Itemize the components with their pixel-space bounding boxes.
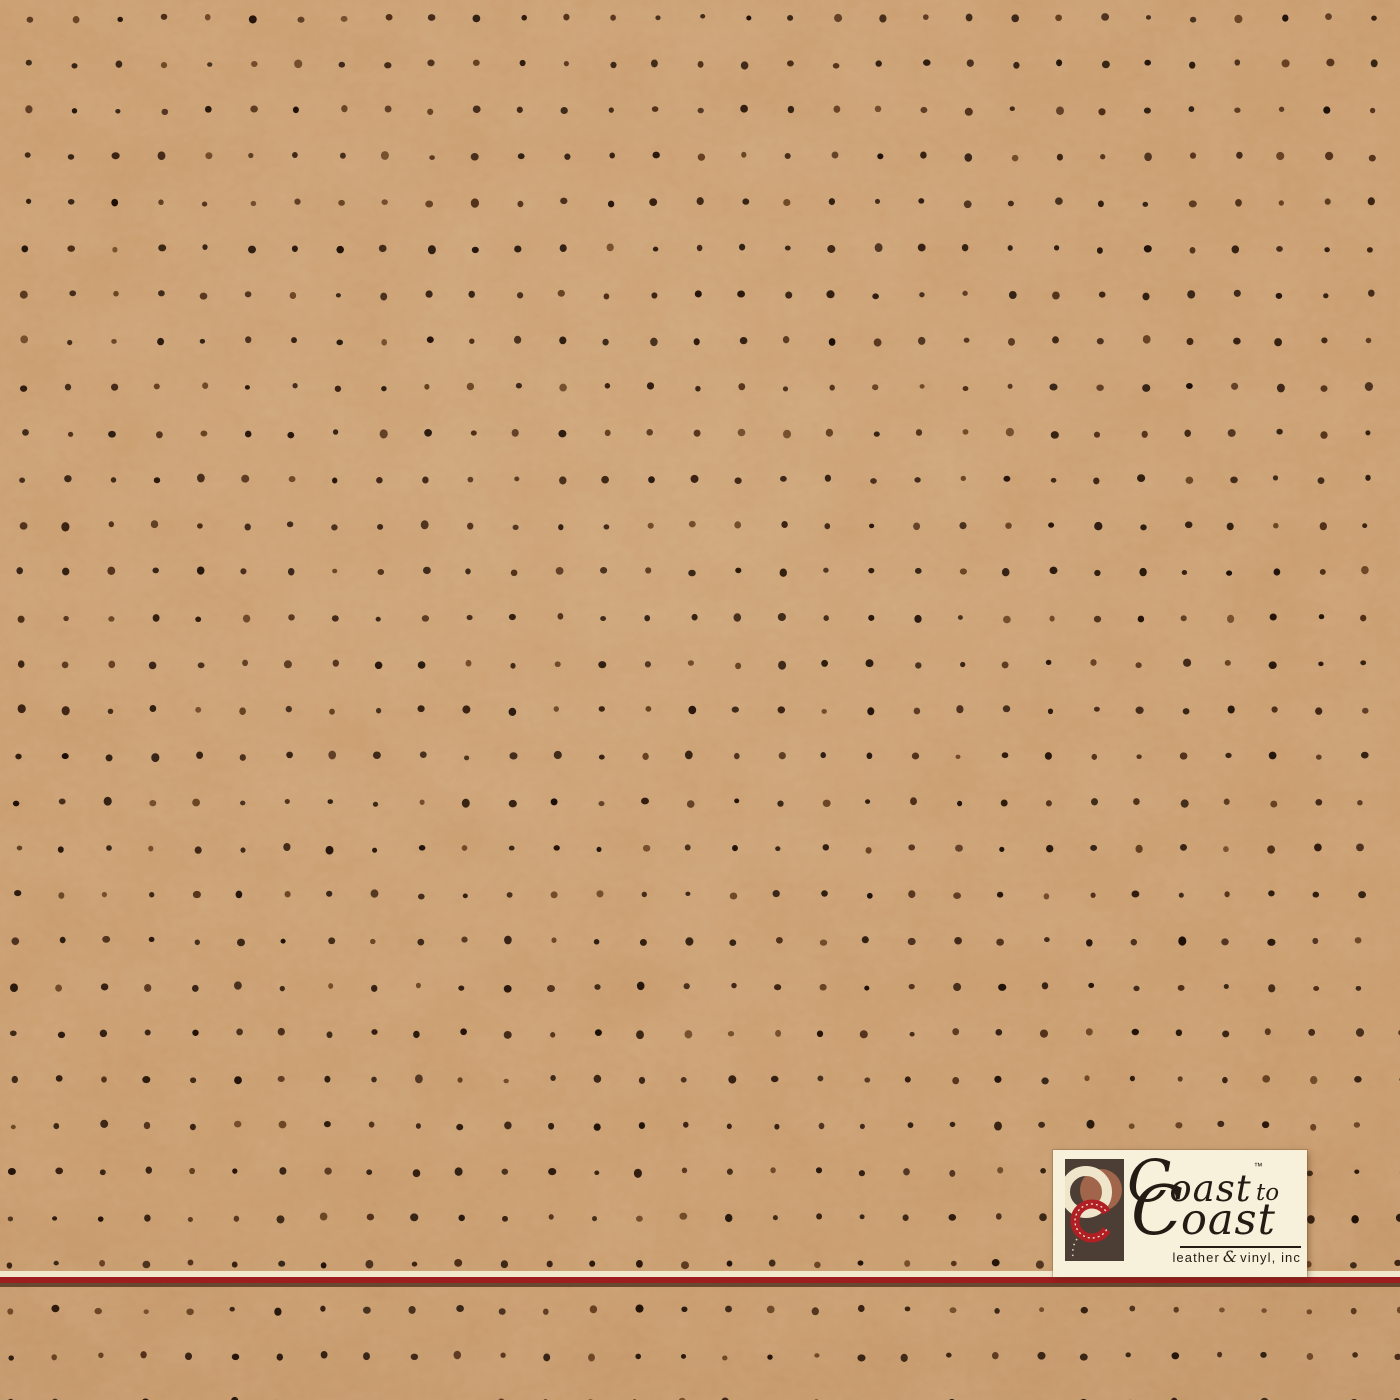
perforation-dot	[735, 477, 742, 484]
perforation-dot	[1126, 1352, 1131, 1357]
perforation-dot	[963, 429, 969, 435]
perforation-dot	[197, 474, 205, 483]
perforation-dot	[1142, 293, 1149, 301]
perforation-dot	[746, 15, 751, 20]
perforation-dot	[192, 799, 200, 807]
perforation-dot	[421, 520, 429, 529]
perforation-dot	[834, 106, 841, 113]
perforation-dot	[1041, 1077, 1048, 1084]
perforation-dot	[289, 476, 296, 482]
perforation-dot	[504, 1121, 511, 1129]
perforation-dot	[997, 892, 1003, 898]
perforation-dot	[698, 154, 705, 161]
perforation-dot	[1088, 983, 1094, 988]
perforation-dot	[602, 339, 608, 346]
perforation-dot	[1261, 1308, 1266, 1313]
perforation-dot	[152, 567, 158, 573]
perforation-dot	[324, 1121, 331, 1127]
perforation-dot	[564, 153, 570, 159]
perforation-dot	[467, 523, 473, 530]
perforation-dot	[689, 521, 696, 528]
perforation-dot	[908, 844, 915, 850]
perforation-dot	[1181, 799, 1189, 807]
perforation-dot	[773, 890, 780, 897]
perforation-dot	[188, 1260, 194, 1266]
perforation-dot	[644, 615, 650, 621]
perforation-dot	[951, 1261, 957, 1266]
perforation-dot	[998, 984, 1006, 991]
perforation-dot	[952, 1028, 959, 1035]
perforation-dot	[908, 938, 916, 945]
perforation-dot	[652, 106, 659, 112]
perforation-dot	[777, 800, 783, 806]
perforation-dot	[694, 430, 701, 437]
perforation-dot	[735, 568, 741, 574]
perforation-dot	[1368, 197, 1375, 205]
perforation-dot	[864, 986, 869, 991]
perforation-dot	[239, 707, 246, 715]
perforation-dot	[1227, 523, 1234, 531]
perforation-dot	[427, 109, 433, 115]
perforation-dot	[381, 199, 387, 205]
perforation-dot	[8, 1216, 13, 1221]
perforation-dot	[144, 1214, 151, 1221]
perforation-dot	[380, 293, 387, 301]
perforation-dot	[1183, 659, 1191, 667]
perforation-dot	[912, 753, 919, 760]
perforation-dot	[1276, 246, 1283, 252]
perforation-dot	[918, 198, 924, 204]
perforation-dot	[467, 383, 474, 390]
perforation-dot	[1319, 614, 1325, 619]
perforation-dot	[994, 1308, 999, 1314]
perforation-dot	[520, 60, 526, 66]
perforation-dot	[466, 660, 472, 667]
perforation-dot	[1310, 1124, 1316, 1131]
perforation-dot	[117, 17, 123, 22]
perforation-dot	[58, 892, 64, 899]
perforation-dot	[458, 1077, 463, 1083]
perforation-dot	[192, 1030, 198, 1036]
perforation-dot	[190, 1124, 196, 1130]
perforation-dot	[514, 336, 521, 344]
perforation-dot	[1268, 984, 1275, 992]
perforation-dot	[232, 1262, 238, 1268]
perforation-dot	[1316, 755, 1322, 760]
perforation-dot	[473, 15, 481, 23]
perforation-dot	[192, 985, 199, 992]
perforation-dot	[16, 567, 23, 574]
perforation-dot	[427, 60, 434, 67]
perforation-dot	[698, 108, 704, 114]
perforation-dot	[1320, 522, 1327, 530]
perforation-dot	[1356, 986, 1362, 991]
perforation-dot	[73, 16, 80, 23]
perforation-dot	[561, 107, 568, 114]
perforation-dot	[1313, 986, 1319, 991]
perforation-dot	[1049, 383, 1057, 390]
perforation-dot	[499, 1308, 506, 1315]
perforation-dot	[1101, 13, 1109, 21]
perforation-dot	[1272, 706, 1278, 712]
perforation-dot	[645, 661, 651, 667]
perforation-dot	[560, 198, 567, 204]
perforation-dot	[460, 1028, 467, 1035]
perforation-dot	[859, 1170, 865, 1176]
perforation-dot	[514, 477, 519, 482]
perforation-dot	[1217, 1352, 1222, 1358]
perforation-dot	[635, 1305, 643, 1313]
perforation-dot	[1226, 570, 1232, 575]
perforation-dot	[725, 1306, 732, 1313]
perforation-dot	[547, 1261, 553, 1268]
perforation-dot	[234, 981, 242, 989]
perforation-dot	[695, 290, 702, 297]
perforation-dot	[294, 198, 300, 204]
perforation-dot	[1282, 14, 1288, 21]
perforation-dot	[1270, 801, 1277, 808]
perforation-dot	[864, 1077, 870, 1082]
perforation-dot	[240, 847, 245, 852]
perforation-dot	[500, 1352, 505, 1357]
perforation-dot	[636, 1260, 643, 1268]
perforation-dot	[281, 939, 286, 944]
perforation-dot	[681, 1261, 689, 1269]
perforation-dot	[279, 1121, 287, 1129]
perforation-dot	[741, 61, 749, 69]
perforation-dot	[108, 431, 116, 438]
perforation-dot	[1086, 1120, 1094, 1129]
perforation-dot	[1325, 198, 1331, 204]
perforation-dot	[425, 200, 433, 207]
perforation-dot	[655, 15, 660, 20]
perforation-dot	[1056, 107, 1064, 116]
perforation-dot	[13, 801, 19, 807]
perforation-dot	[1008, 338, 1015, 346]
perforation-dot	[1184, 430, 1191, 437]
perforation-dot	[872, 384, 878, 390]
perforation-dot	[420, 751, 427, 758]
perforation-dot	[1084, 1075, 1089, 1081]
perforation-dot	[1048, 522, 1054, 527]
perforation-dot	[1352, 1352, 1358, 1358]
perforation-dot	[872, 293, 879, 299]
perforation-dot	[376, 708, 381, 714]
perforation-dot	[207, 62, 212, 67]
perforation-dot	[965, 108, 973, 116]
perforation-dot	[918, 244, 926, 252]
perforation-dot	[1350, 1262, 1357, 1268]
perforation-dot	[1227, 615, 1234, 623]
perforation-dot	[61, 522, 69, 531]
perforation-dot	[1091, 892, 1096, 898]
perforation-dot	[462, 845, 468, 851]
perforation-dot	[284, 660, 292, 668]
perforation-dot	[858, 1260, 864, 1265]
perforation-dot	[412, 1262, 417, 1267]
perforation-dot	[17, 846, 23, 851]
perforation-dot	[509, 752, 517, 759]
perforation-dot	[698, 61, 704, 68]
perforation-dot	[1189, 200, 1197, 207]
perforation-dot	[727, 1261, 733, 1267]
perforation-dot	[376, 617, 381, 622]
perforation-dot	[563, 14, 569, 21]
perforation-dot	[340, 153, 346, 159]
perforation-dot	[607, 243, 614, 251]
perforation-dot	[685, 844, 691, 850]
perforation-dot	[1009, 291, 1017, 299]
perforation-dot	[1171, 1352, 1179, 1359]
perforation-dot	[376, 477, 383, 483]
perforation-dot	[728, 1031, 734, 1036]
perforation-dot	[734, 753, 740, 759]
perforation-dot	[722, 1355, 727, 1360]
perforation-dot	[468, 291, 475, 298]
perforation-dot	[732, 706, 739, 712]
perforation-dot	[100, 1030, 107, 1037]
perforation-dot	[278, 1076, 285, 1082]
logo-tagline-rule	[1180, 1246, 1301, 1248]
perforation-dot	[472, 247, 479, 253]
perforation-dot	[949, 1170, 955, 1177]
perforation-dot	[341, 105, 347, 112]
perforation-dot	[371, 1077, 377, 1083]
perforation-dot	[642, 753, 648, 760]
tagline-word-leather: leather	[1172, 1250, 1219, 1265]
perforation-dot	[1146, 15, 1151, 20]
perforation-dot	[1052, 336, 1059, 343]
perforation-dot	[1142, 431, 1148, 438]
perforation-dot	[62, 706, 70, 715]
perforation-dot	[1394, 1354, 1400, 1360]
perforation-dot	[1318, 662, 1323, 667]
perforation-dot	[1189, 106, 1195, 112]
perforation-dot	[605, 383, 610, 389]
perforation-dot	[1046, 800, 1052, 806]
perforation-dot	[287, 432, 294, 438]
perforation-dot	[725, 1214, 732, 1222]
perforation-dot	[333, 660, 339, 667]
perforation-dot	[338, 200, 345, 206]
perforation-dot	[821, 660, 828, 667]
perforation-dot	[111, 199, 118, 207]
perforation-dot	[53, 1123, 59, 1129]
perforation-dot	[953, 983, 961, 991]
perforation-dot	[326, 891, 332, 897]
perforation-dot	[787, 15, 793, 21]
perforation-dot	[339, 62, 345, 68]
perforation-dot	[1008, 201, 1014, 207]
perforation-dot	[236, 1028, 243, 1035]
perforation-dot	[18, 660, 25, 668]
perforation-dot	[609, 153, 615, 159]
perforation-dot	[413, 1031, 420, 1038]
perforation-dot	[770, 1167, 775, 1173]
perforation-dot	[729, 939, 736, 946]
perforation-dot	[1351, 1308, 1357, 1315]
perforation-dot	[867, 707, 874, 715]
perforation-dot	[639, 1077, 645, 1084]
perforation-dot	[727, 1169, 733, 1175]
perforation-dot	[11, 1125, 16, 1129]
perforation-dot	[957, 801, 962, 807]
perforation-dot	[697, 197, 704, 205]
perforation-dot	[823, 615, 828, 621]
perforation-dot	[558, 290, 565, 297]
perforation-dot	[547, 985, 555, 992]
perforation-dot	[1274, 338, 1282, 346]
perforation-dot	[995, 1029, 1002, 1036]
perforation-dot	[471, 430, 477, 435]
perforation-dot	[734, 799, 739, 804]
perforation-dot	[598, 661, 606, 668]
perforation-dot	[509, 800, 517, 807]
perforation-dot	[112, 247, 117, 253]
perforation-dot	[237, 939, 245, 947]
perforation-dot	[558, 430, 566, 437]
perforation-dot	[651, 292, 657, 298]
perforation-dot	[1144, 152, 1152, 161]
perforation-dot	[158, 151, 166, 160]
perforation-dot	[560, 244, 567, 252]
perforation-dot	[1354, 1122, 1360, 1128]
perforation-dot	[1098, 108, 1105, 115]
perforation-dot	[20, 335, 28, 343]
perforation-dot	[827, 245, 835, 253]
perforation-dot	[186, 1308, 193, 1315]
perforation-dot	[635, 1354, 641, 1360]
perforation-dot	[642, 892, 647, 897]
perforation-dot	[727, 1124, 732, 1130]
perforation-dot	[646, 429, 653, 435]
perforation-dot	[373, 751, 381, 759]
perforation-dot	[232, 1168, 237, 1174]
perforation-dot	[1003, 705, 1010, 712]
perforation-dot	[605, 430, 611, 436]
perforation-dot	[58, 846, 64, 852]
perforation-dot	[1371, 15, 1377, 20]
perforation-dot	[685, 751, 693, 760]
perforation-dot	[426, 290, 433, 297]
perforation-dot	[200, 339, 205, 344]
perforation-dot	[1011, 14, 1019, 22]
perforation-dot	[1142, 202, 1148, 207]
leather-swatch: Coast™ to Coast leather & vinyl, inc	[0, 0, 1400, 1400]
perforation-dot	[737, 290, 745, 297]
perforation-dot	[1315, 799, 1322, 805]
perforation-dot	[234, 1216, 240, 1222]
perforation-dot	[280, 986, 285, 991]
perforation-dot	[820, 752, 826, 758]
perforation-dot	[328, 751, 336, 760]
perforation-dot	[1396, 1214, 1400, 1222]
perforation-dot	[467, 615, 473, 620]
perforation-dot	[636, 1216, 643, 1222]
perforation-dot	[251, 61, 258, 67]
perforation-dot	[422, 477, 428, 484]
perforation-dot	[604, 293, 610, 299]
perforation-dot	[1369, 155, 1376, 162]
perforation-dot	[559, 476, 566, 484]
perforation-dot	[408, 1306, 415, 1314]
perforation-dot	[1186, 477, 1194, 484]
perforation-dot	[1362, 708, 1369, 714]
perforation-dot	[1036, 1260, 1044, 1268]
perforation-dot	[634, 1169, 642, 1178]
perforation-dot	[516, 383, 522, 389]
perforation-dot	[834, 14, 842, 22]
perforation-dot	[915, 568, 922, 574]
perforation-dot	[200, 431, 207, 437]
perforation-dot	[785, 153, 791, 159]
perforation-dot	[1267, 845, 1275, 853]
perforation-dot	[1234, 290, 1241, 297]
perforation-dot	[324, 1167, 331, 1174]
perforation-dot	[920, 107, 927, 113]
perforation-dot	[288, 614, 295, 620]
perforation-dot	[832, 152, 839, 159]
perforation-dot	[551, 891, 558, 898]
perforation-dot	[694, 338, 700, 345]
perforation-dot	[366, 1169, 372, 1175]
perforation-dot	[418, 705, 425, 712]
perforation-dot	[595, 1029, 602, 1036]
perforation-dot	[8, 1355, 13, 1360]
perforation-dot	[65, 384, 71, 391]
perforation-dot	[1185, 521, 1193, 528]
perforation-dot	[908, 1122, 914, 1128]
perforation-dot	[63, 616, 68, 621]
perforation-dot	[371, 889, 379, 897]
perforation-dot	[332, 615, 339, 621]
perforation-dot	[543, 1308, 549, 1314]
perforation-dot	[1005, 523, 1012, 529]
perforation-dot	[1130, 1076, 1135, 1082]
perforation-dot	[1144, 108, 1151, 114]
perforation-dot	[1230, 477, 1238, 484]
perforation-dot	[1132, 1029, 1139, 1035]
perforation-dot	[1094, 616, 1101, 623]
perforation-dot	[1002, 752, 1009, 758]
perforation-dot	[67, 245, 75, 252]
perforation-dot	[200, 293, 208, 300]
perforation-dot	[866, 659, 874, 667]
perforation-dot	[1190, 247, 1196, 254]
perforation-dot	[197, 566, 205, 574]
perforation-dot	[1235, 199, 1242, 207]
perforation-dot	[825, 475, 831, 482]
perforation-dot	[1138, 616, 1145, 623]
perforation-dot	[683, 1122, 689, 1128]
perforation-dot	[504, 985, 512, 993]
perforation-dot	[1190, 152, 1196, 158]
perforation-dot	[599, 755, 605, 760]
perforation-dot	[637, 982, 645, 991]
perforation-dot	[609, 107, 614, 112]
perforation-dot	[919, 292, 924, 297]
perforation-dot	[1136, 707, 1144, 714]
perforation-dot	[332, 478, 337, 484]
perforation-dot	[458, 986, 464, 991]
perforation-dot	[916, 429, 922, 436]
perforation-dot	[428, 14, 436, 21]
perforation-dot	[195, 846, 202, 853]
perforation-dot	[371, 1029, 377, 1035]
perforation-dot	[1096, 384, 1103, 391]
perforation-dot	[461, 937, 467, 943]
perforation-dot	[327, 1031, 333, 1038]
